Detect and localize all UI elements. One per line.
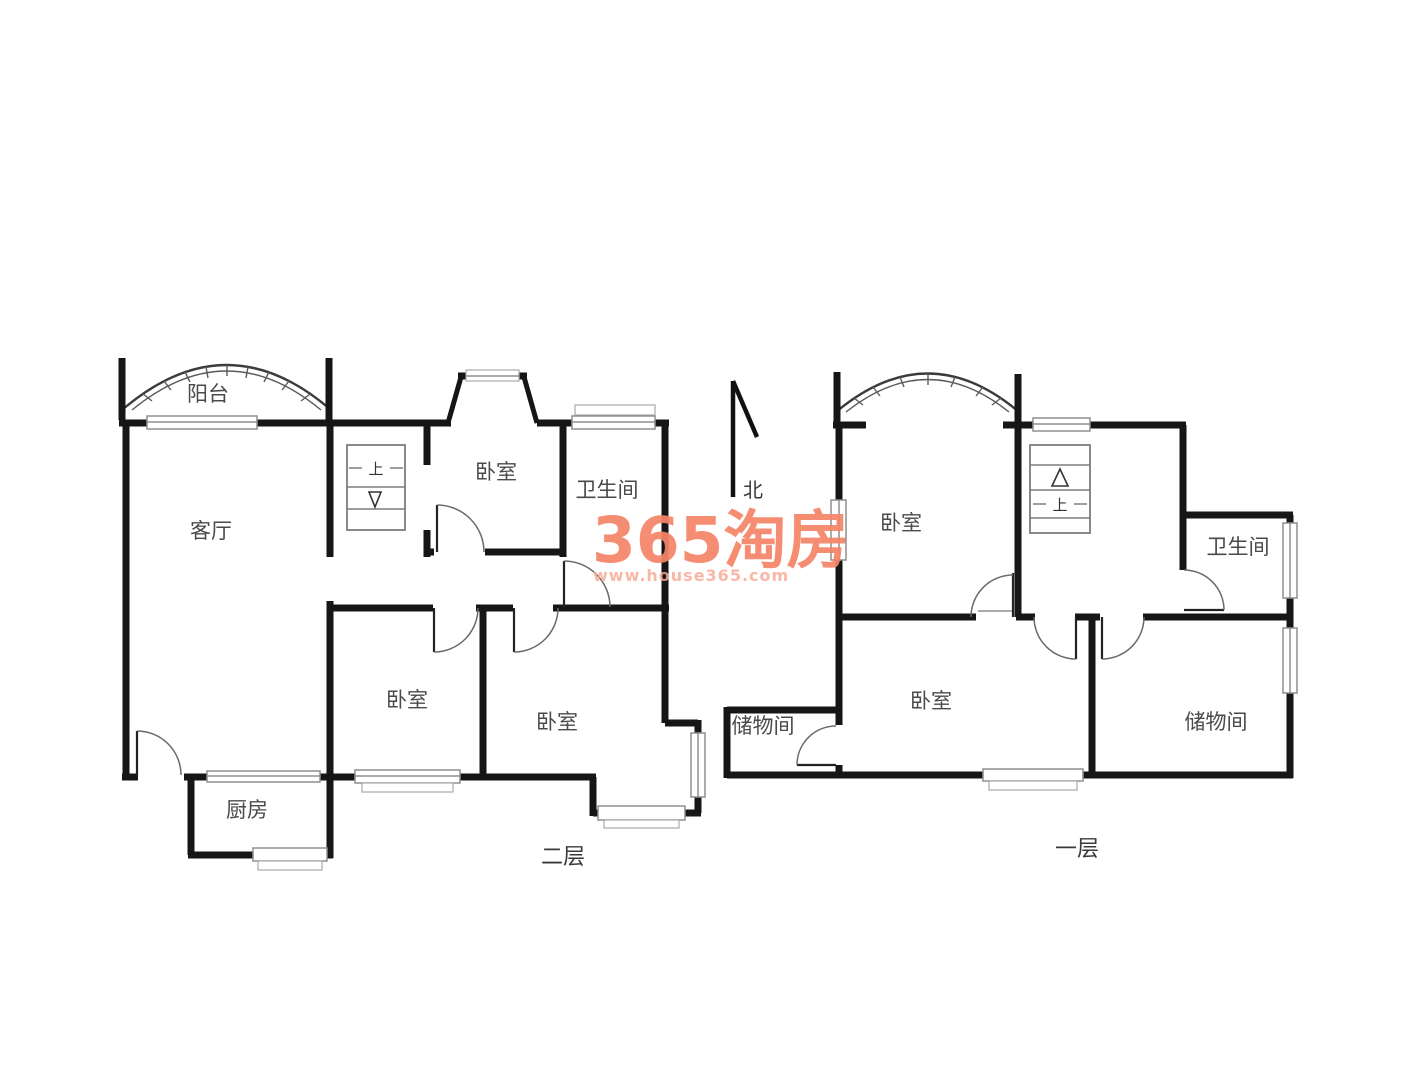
doors-first-floor xyxy=(797,570,1224,765)
label-bedroom-mid-left: 卧室 xyxy=(386,688,428,712)
stairs-first-floor: 上 xyxy=(1030,445,1090,533)
watermark: 365淘房 www.house365.com xyxy=(592,504,850,585)
label-storage-right: 储物间 xyxy=(1185,710,1248,734)
label-living-room: 客厅 xyxy=(190,519,232,543)
stairs-second-floor: 上 xyxy=(347,445,405,530)
north-arrow-icon: 北 xyxy=(733,381,763,502)
label-bathroom: 卫生间 xyxy=(576,478,639,502)
doors-second-floor xyxy=(137,505,610,775)
label-bedroom-top: 卧室 xyxy=(475,460,517,484)
label-floor-first: 一层 xyxy=(1055,837,1099,862)
north-label: 北 xyxy=(743,478,763,502)
watermark-url: www.house365.com xyxy=(593,566,789,585)
plan-first-floor: 上 卧室 卫生间 储物间 卧室 储物间 一层 xyxy=(727,372,1297,862)
label-kitchen: 厨房 xyxy=(226,798,268,822)
plan-second-floor: 上 阳台 客厅 卧室 卫生间 卧室 卧室 厨房 二层 xyxy=(119,358,705,870)
bedroom-bay-window xyxy=(448,370,537,423)
floorplan-svg: 上 阳台 客厅 卧室 卫生间 卧室 卧室 厨房 二层 北 xyxy=(0,0,1420,1065)
label-bedroom-mid-right: 卧室 xyxy=(536,710,578,734)
bedroom-bay-window-first xyxy=(836,372,1019,425)
floorplan-image: 上 阳台 客厅 卧室 卫生间 卧室 卧室 厨房 二层 北 xyxy=(0,0,1420,1065)
label-floor-second: 二层 xyxy=(541,845,585,870)
label-bedroom-top-first: 卧室 xyxy=(880,511,922,535)
label-bathroom-first: 卫生间 xyxy=(1207,535,1270,559)
label-bedroom-bottom: 卧室 xyxy=(910,689,952,713)
stairs-up-label: 上 xyxy=(368,460,383,478)
label-balcony: 阳台 xyxy=(187,382,229,406)
stairs-up-label-first: 上 xyxy=(1052,496,1067,514)
label-storage-left: 储物间 xyxy=(732,714,795,738)
